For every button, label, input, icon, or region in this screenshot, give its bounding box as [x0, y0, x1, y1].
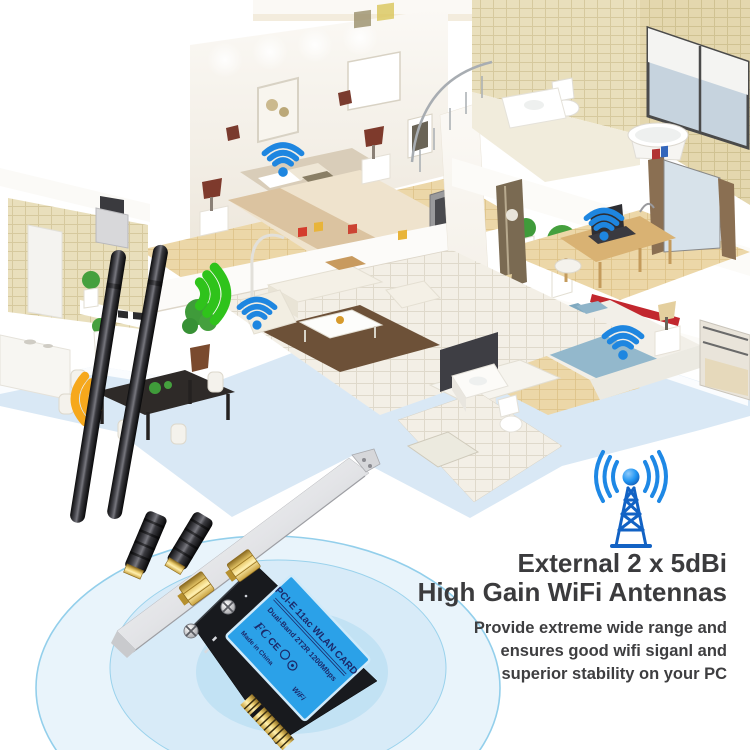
- wall-picture: [258, 78, 298, 142]
- product-banner: PCI-E 11ac WLAN CARD Dual-Band 2T2R 1200…: [0, 0, 750, 750]
- wall-picture-grid: [348, 52, 400, 110]
- description-line1: Provide extreme wide range and: [474, 617, 727, 640]
- headline-line1: External 2 x 5dBi: [418, 549, 727, 578]
- cabinet-tall: [28, 225, 62, 318]
- radio-tower-icon: [596, 452, 666, 546]
- wifi-icon-green-large: [200, 267, 227, 320]
- headline-line2: High Gain WiFi Antennas: [418, 578, 727, 607]
- chair: [555, 259, 581, 273]
- description: Provide extreme wide range and ensures g…: [474, 617, 727, 686]
- headline: External 2 x 5dBi High Gain WiFi Antenna…: [418, 549, 727, 607]
- potted-plant: [82, 271, 100, 308]
- description-line3: superior stability on your PC: [474, 663, 727, 686]
- range-hood: [96, 196, 128, 248]
- description-line2: ensures good wifi siganl and: [474, 640, 727, 663]
